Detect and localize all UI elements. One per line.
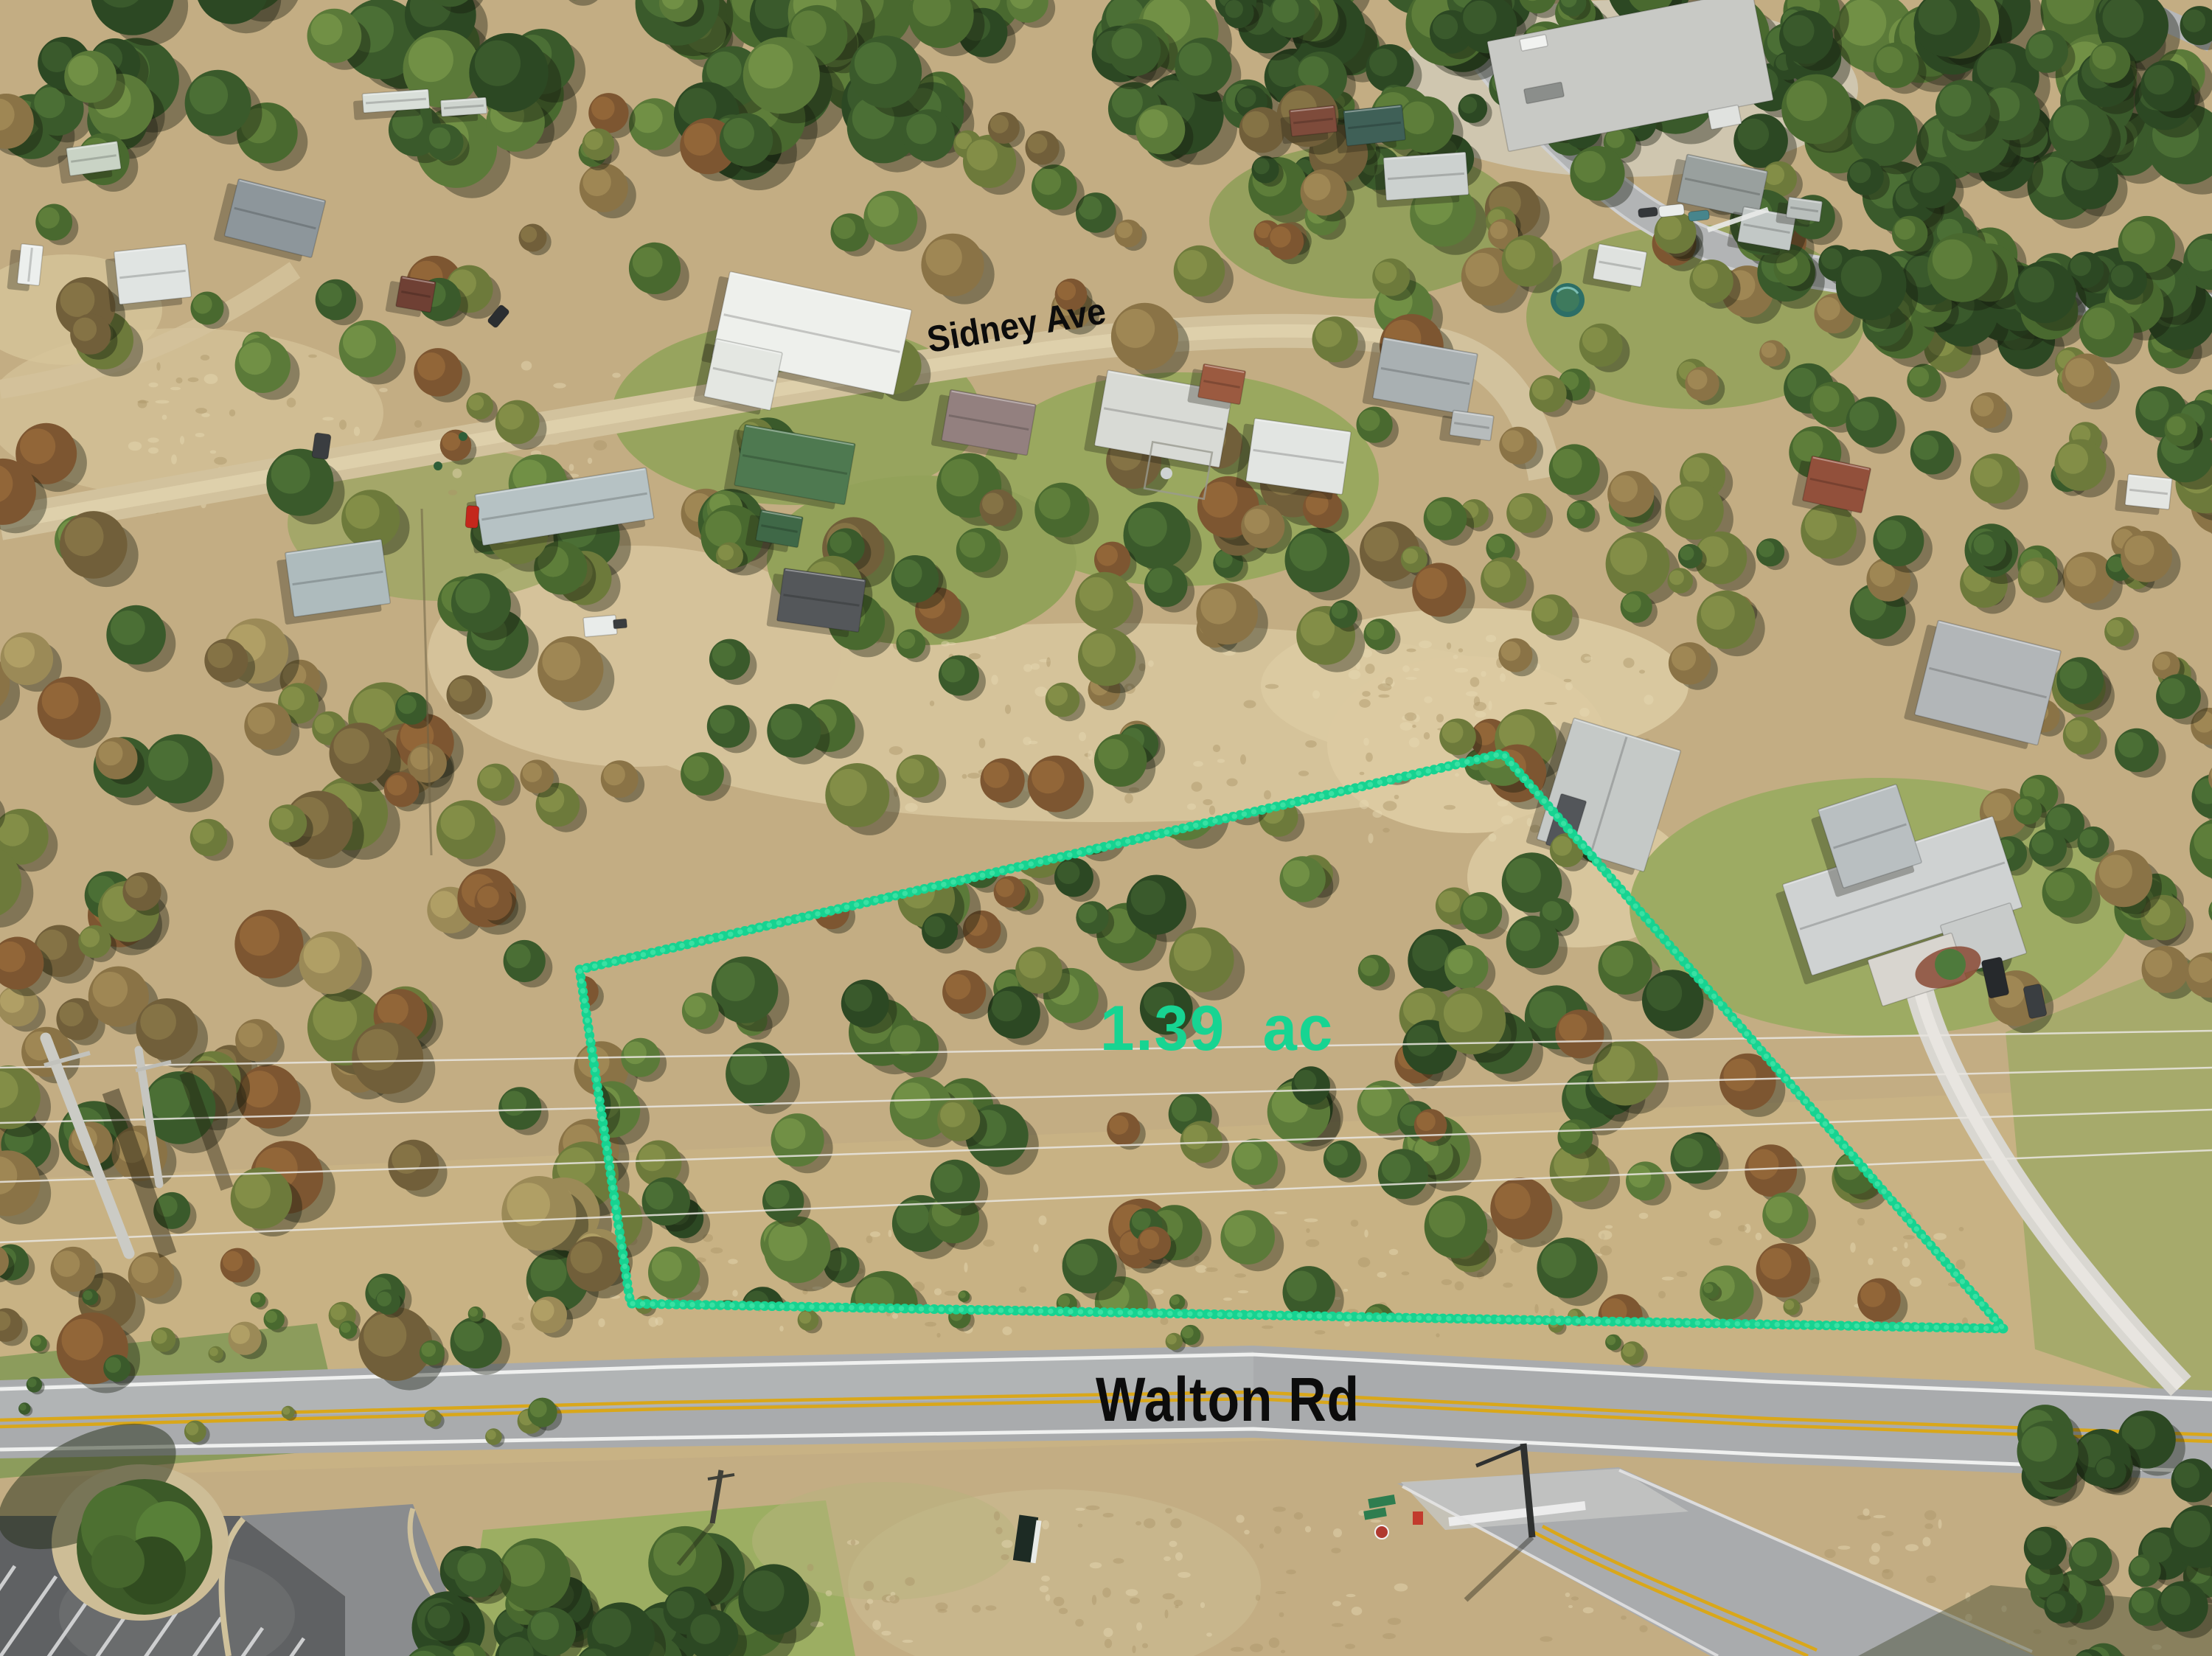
vehicle	[1688, 210, 1709, 222]
building	[276, 539, 392, 625]
aerial-photo-container: Sidney Ave 1.39 ac Walton Rd	[0, 0, 2212, 1656]
building	[352, 89, 430, 120]
stop-sign	[1375, 1525, 1388, 1539]
building	[1236, 417, 1352, 501]
building	[1334, 105, 1406, 153]
building	[105, 244, 192, 312]
building	[613, 619, 627, 629]
parking-lot-tree	[77, 1479, 212, 1615]
vehicle	[312, 433, 332, 460]
aerial-photo	[0, 0, 2212, 1656]
building	[766, 567, 866, 639]
building	[583, 615, 617, 637]
red-marker	[1413, 1511, 1423, 1525]
vehicle	[1638, 207, 1658, 218]
vehicle	[465, 505, 479, 528]
vehicle	[1658, 203, 1684, 217]
pool	[1551, 283, 1585, 317]
building	[7, 243, 43, 292]
building	[1374, 152, 1469, 208]
